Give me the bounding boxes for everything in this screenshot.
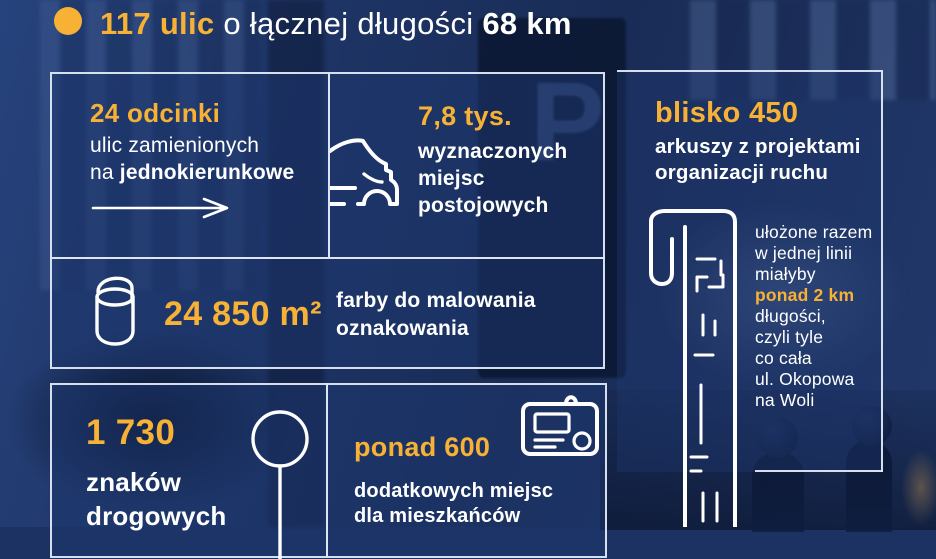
- stat-box-parking-spots: 7,8 tys. wyznaczonych miejsc postojowych: [328, 72, 605, 259]
- paint-label: farby do malowania oznakowania: [336, 287, 536, 343]
- header-bullet-icon: [54, 7, 82, 35]
- sheets-value: blisko 450: [655, 98, 798, 128]
- road-signs-label: znaków drogowych: [86, 465, 226, 533]
- paint-value: 24 850 m²: [164, 297, 322, 333]
- sheets-note-highlight: ponad 2 km: [755, 285, 872, 306]
- resident-spots-label: dodatkowych miejsc dla mieszkańców: [354, 479, 553, 529]
- stat-box-resident-spots: ponad 600 dodatkowych miejsc dla mieszka…: [326, 383, 607, 558]
- paint-bucket-icon: [84, 271, 146, 353]
- one-way-value: 24 odcinki: [90, 100, 220, 127]
- parking-spots-label: wyznaczonych miejsc postojowych: [418, 138, 567, 219]
- one-way-label: ulic zamienionych na jednokierunkowe: [90, 132, 294, 186]
- stat-box-road-signs: 1 730 znaków drogowych: [50, 383, 328, 558]
- road-signs-value: 1 730: [86, 415, 175, 452]
- sheets-label: arkuszy z projektami organizacji ruchu: [655, 134, 861, 186]
- title-streets-count: 117 ulic: [100, 6, 214, 41]
- background-warm-light: [896, 440, 936, 535]
- page-title: 117 ulic o łącznej długości 68 km: [100, 2, 572, 46]
- sheets-box-bottom-border: [755, 470, 883, 472]
- parking-spots-value: 7,8 tys.: [418, 102, 512, 130]
- title-middle-text: o łącznej długości: [214, 6, 482, 41]
- permit-card-icon: [518, 391, 602, 459]
- stat-band-paint: 24 850 m² farby do malowania oznakowania: [50, 257, 605, 369]
- car-icon: [330, 124, 400, 218]
- resident-spots-value: ponad 600: [354, 433, 490, 461]
- arrow-right-icon: [90, 196, 232, 220]
- stat-box-one-way-streets: 24 odcinki ulic zamienionych na jednokie…: [50, 72, 330, 259]
- road-sign-icon: [248, 409, 312, 559]
- sheets-note: ułożone razem w jednej linii miałyby pon…: [755, 222, 872, 411]
- rolled-plans-icon: [645, 203, 745, 527]
- title-length: 68 km: [482, 6, 571, 41]
